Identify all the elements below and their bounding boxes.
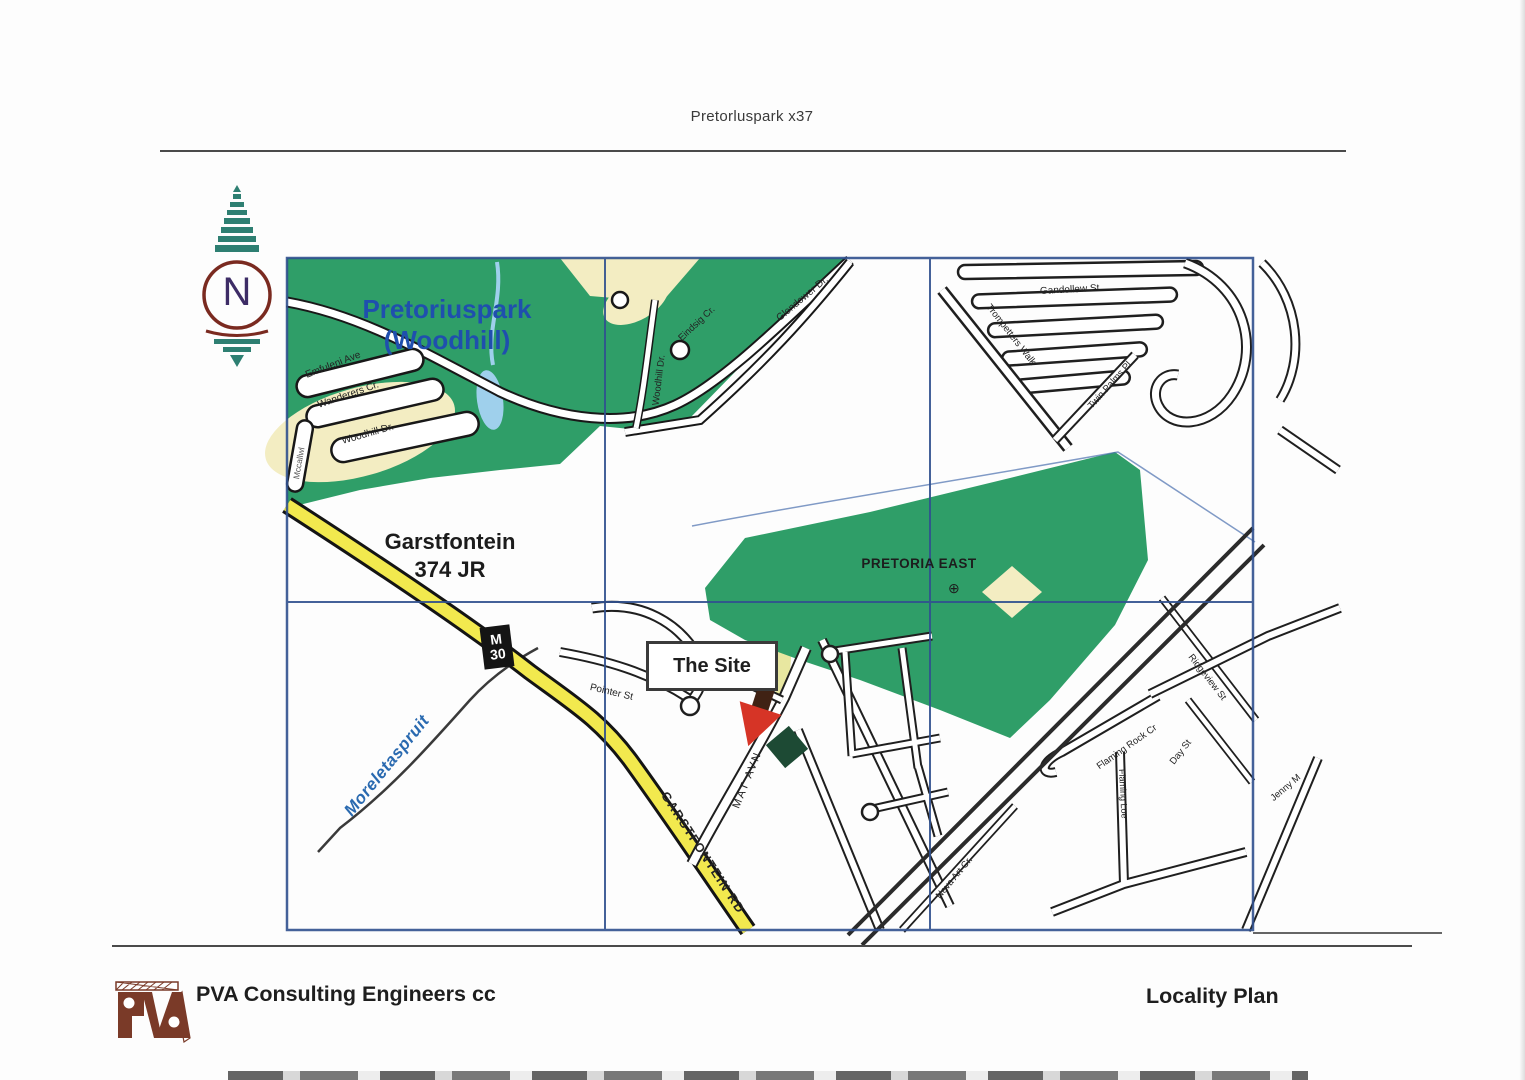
footer-divider (112, 945, 1412, 947)
pva-logo-icon (112, 980, 192, 1046)
moreletaspruit-stream (318, 648, 538, 852)
footer-company-name: PVA Consulting Engineers cc (196, 982, 496, 1007)
pretoria-east-label: PRETORIA EAST (845, 556, 993, 571)
map-artwork (0, 0, 1525, 1080)
m30-route-badge: M 30 (480, 624, 515, 669)
site-callout-box: The Site (646, 641, 778, 691)
document-page: Pretorluspark x37 N (0, 0, 1525, 1080)
scan-artifact-strip (228, 1071, 1308, 1080)
footer-plan-title: Locality Plan (1146, 984, 1279, 1009)
site-callout-label: The Site (673, 655, 751, 678)
northeast-estate-roads (942, 261, 1338, 470)
suburb-label: Pretoriuspark (Woodhill) (337, 294, 557, 355)
survey-beacon-icon: ⊕ (948, 580, 960, 597)
pva-logo-artwork (112, 980, 192, 1046)
scan-edge-shadow (1519, 0, 1525, 1080)
farm-label: Garstfontein 374 JR (360, 528, 540, 583)
